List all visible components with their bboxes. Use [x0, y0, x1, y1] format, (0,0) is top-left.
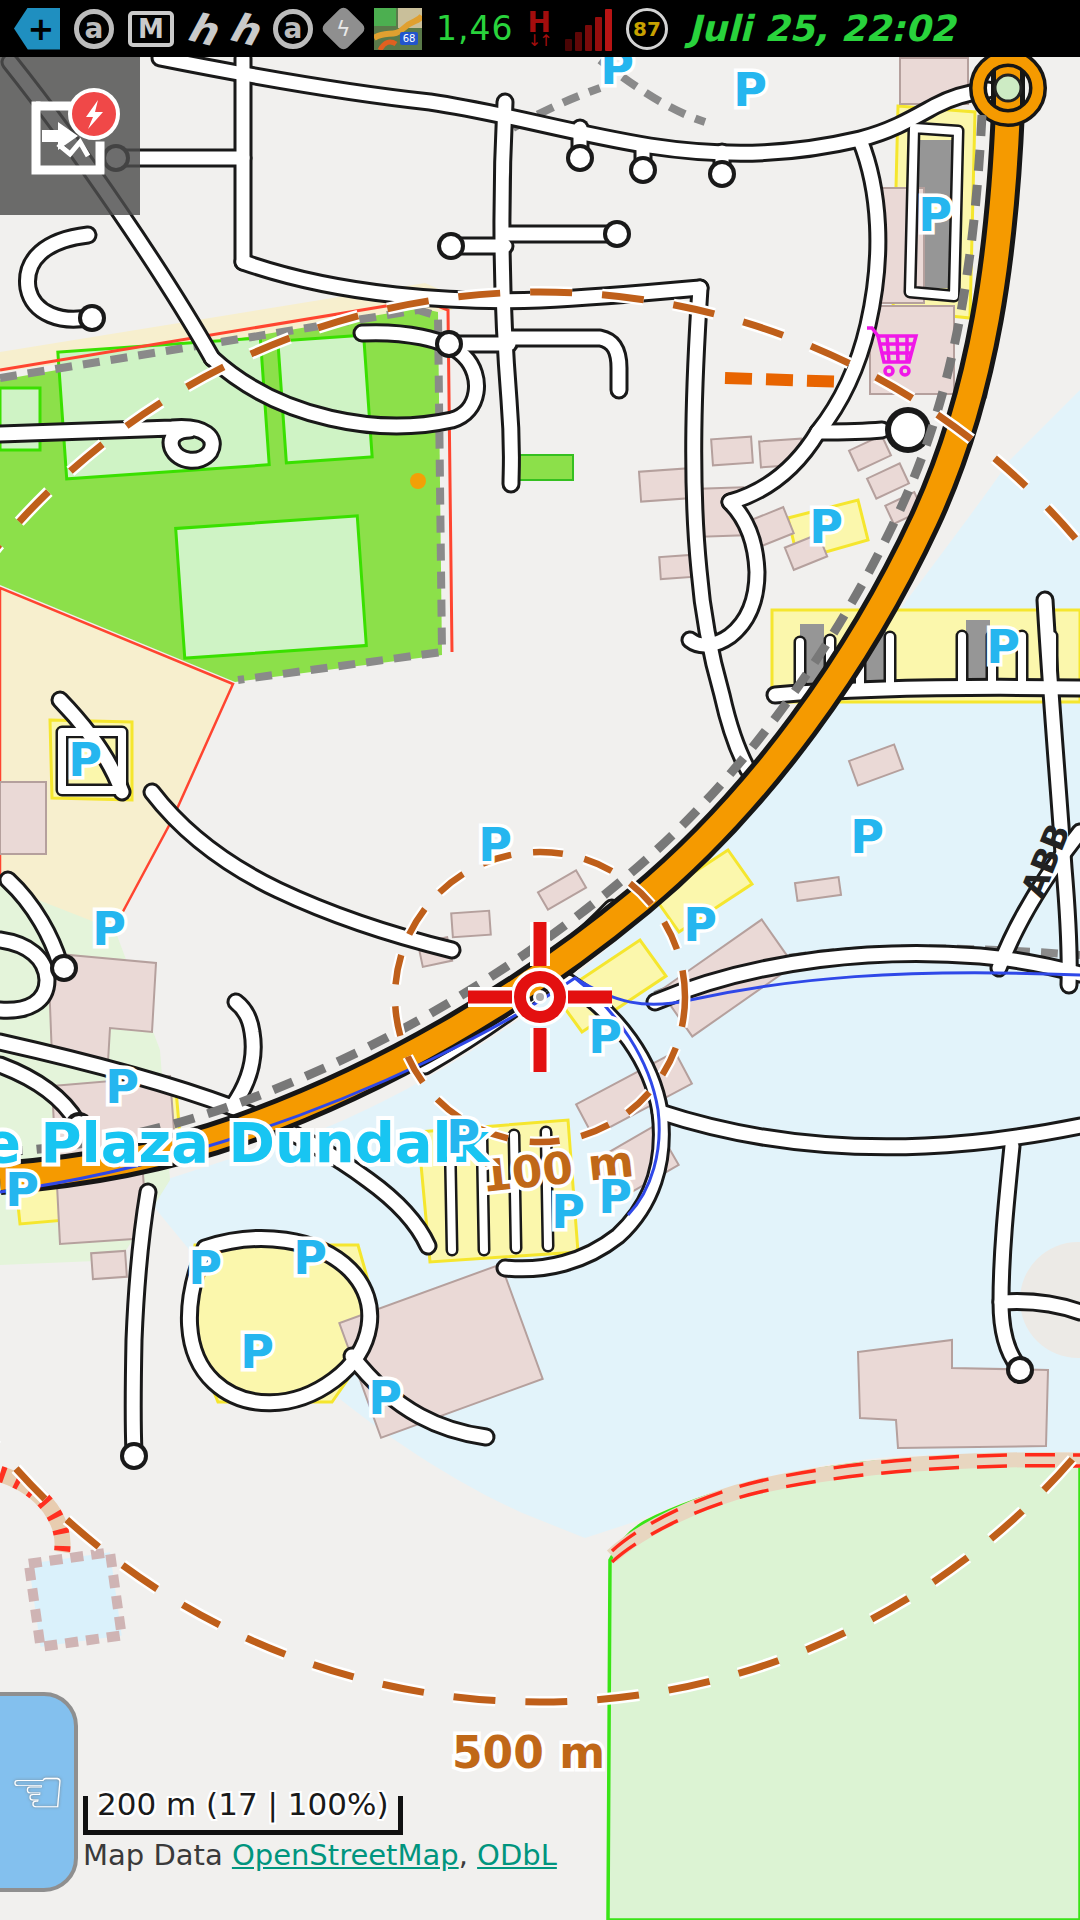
map-scale-bar: 200 m (17 | 100%): [83, 1786, 403, 1835]
parking-marker: P: [105, 1060, 139, 1114]
attribution-prefix: Map Data: [83, 1838, 232, 1872]
ring-500-label: 500 m: [452, 1727, 605, 1778]
notification-minimap-icon: 68: [374, 8, 422, 50]
battery-percent: 87: [633, 17, 661, 41]
side-panel-handle[interactable]: ☜: [0, 1692, 78, 1892]
place-label: The Plaza Dundalk: [0, 1110, 491, 1175]
scale-text: 200 m (17 | 100%): [97, 1786, 389, 1822]
parking-marker: P: [598, 1170, 632, 1224]
swipe-hand-icon: ☜: [9, 1755, 66, 1829]
parking-marker: P: [986, 620, 1020, 674]
status-bar: + a M h h a ϟ 68 1,46 H↓↑ 87 Juli 25, 22…: [0, 0, 1080, 57]
parking-marker: P: [683, 898, 717, 952]
status-network-mode-icon: H↓↑: [527, 9, 550, 49]
parking-marker: P: [368, 1371, 402, 1425]
parking-marker: P: [850, 810, 884, 864]
attribution-link-openstreetmap[interactable]: OpenStreetMap: [232, 1838, 459, 1872]
notification-gmail-icon: M: [128, 11, 174, 47]
status-battery-icon: 87: [626, 8, 668, 50]
map-canvas[interactable]: ABB 100 m 500 m The Plaza Dundalk PPPPPP…: [0, 0, 1080, 1920]
map-download-button[interactable]: [0, 57, 140, 215]
parking-marker: P: [809, 500, 843, 554]
notification-app-a-icon-2: a: [273, 9, 313, 49]
parking-marker: P: [5, 1163, 39, 1217]
parking-marker: P: [446, 1110, 480, 1164]
construction-road: [725, 378, 848, 382]
notification-app-h-icon-2: h: [225, 3, 264, 55]
status-signal-icon: [565, 7, 612, 51]
notification-app-a-icon: a: [74, 9, 114, 49]
parking-marker: P: [240, 1325, 274, 1379]
poi-dot: [410, 473, 426, 489]
map-attribution: Map Data OpenStreetMap, ODbL: [83, 1838, 557, 1872]
attribution-separator: ,: [459, 1838, 477, 1872]
parking-marker: P: [293, 1231, 327, 1285]
parking-marker: P: [188, 1241, 222, 1295]
attribution-link-odbl[interactable]: ODbL: [477, 1838, 557, 1872]
pond: [29, 1552, 122, 1647]
parking-marker: P: [918, 188, 952, 242]
parking-marker: P: [551, 1185, 585, 1239]
notification-navigation-icon: ϟ: [320, 5, 367, 52]
app-screen: ABB 100 m 500 m The Plaza Dundalk PPPPPP…: [0, 0, 1080, 1920]
small-green: [517, 455, 573, 480]
svg-text:68: 68: [403, 33, 416, 44]
parking-marker: P: [588, 1010, 622, 1064]
status-data-value: 1,46: [436, 9, 513, 48]
notification-app-h-icon: h: [183, 3, 222, 55]
notification-back-arrow-plus-icon: +: [14, 8, 60, 50]
parking-marker: P: [68, 733, 102, 787]
status-datetime: Juli 25, 22:02: [688, 8, 955, 49]
parking-marker: P: [478, 818, 512, 872]
parking-marker: P: [92, 902, 126, 956]
parking-marker: P: [733, 63, 767, 117]
